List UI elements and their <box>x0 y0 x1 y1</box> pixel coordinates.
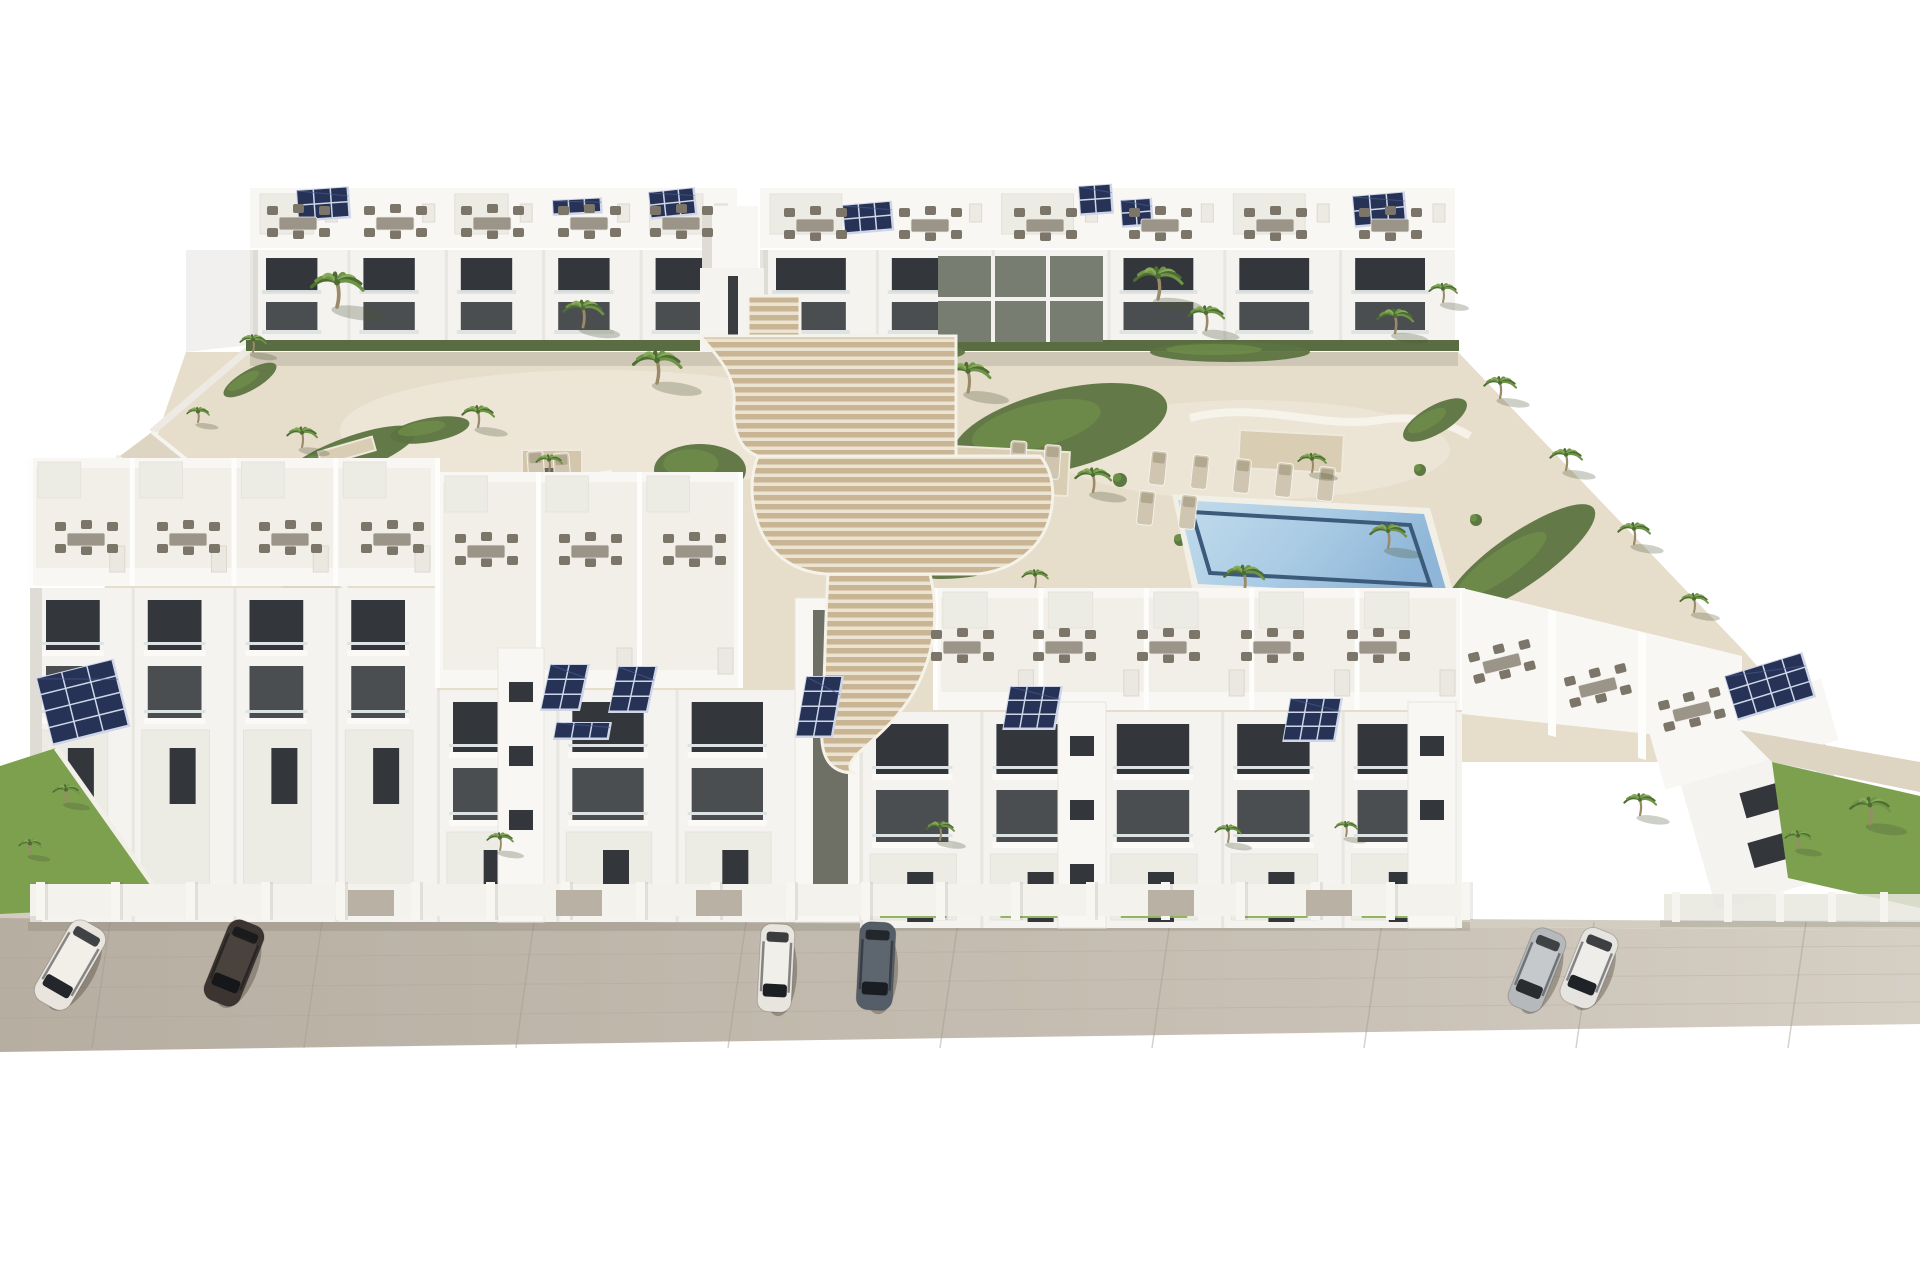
gate <box>696 890 742 916</box>
gate <box>556 890 602 916</box>
hedge <box>246 340 741 351</box>
gate <box>1148 890 1194 916</box>
street <box>0 910 1920 1052</box>
parked-car <box>757 923 796 1013</box>
parked-car <box>856 921 897 1011</box>
solar-array <box>1002 686 1063 730</box>
architectural-render <box>0 0 1920 1280</box>
solar-array <box>553 722 612 740</box>
solar-array <box>842 201 894 235</box>
gate <box>348 890 394 916</box>
solar-array <box>1078 184 1114 216</box>
street-wall <box>30 882 1888 922</box>
right-pool <box>1172 494 1456 602</box>
gate <box>1306 890 1352 916</box>
glazed-atrium <box>938 256 1103 342</box>
solar-array <box>296 186 351 222</box>
wall-shadow <box>186 250 250 352</box>
render-stage <box>0 0 1920 1280</box>
solar-array <box>1282 698 1343 742</box>
